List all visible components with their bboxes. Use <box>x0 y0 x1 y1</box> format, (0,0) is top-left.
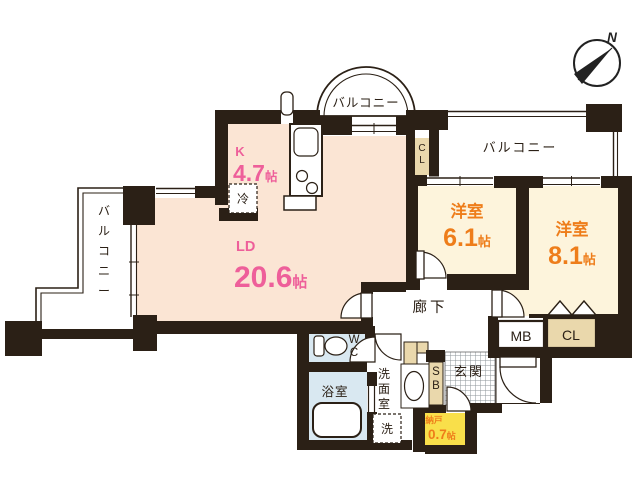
bedroom2-name: 洋室 <box>556 219 589 239</box>
fridge-label: 冷 <box>237 192 249 206</box>
storage-name: 納戸 <box>425 415 443 425</box>
balcony-left-outline <box>36 188 128 330</box>
kitchen-abbr: K <box>235 144 245 159</box>
bedroom1-name: 洋室 <box>451 201 484 221</box>
meter-box-label: MB <box>511 328 532 344</box>
washroom-door-arc <box>375 334 401 360</box>
balcony-top-label: バルコニー <box>332 96 399 110</box>
front-door-leaf <box>500 357 536 367</box>
ld-abbr: LD <box>236 239 255 255</box>
kitchen-door-leaf <box>281 92 293 115</box>
bedroom1-door-leaf <box>416 251 424 279</box>
floor-plan: バルコニー バルコニー バルコニー K 4.7帖 冷 LD 20.6帖 洋室 6… <box>0 0 640 480</box>
washroom-label: 洗面室 <box>378 367 390 411</box>
entrance-label: 玄関 <box>454 364 484 379</box>
washer-label: 洗 <box>381 422 393 436</box>
wash-basin <box>405 372 424 401</box>
bathtub <box>313 403 361 437</box>
stove-burner-1 <box>297 171 308 182</box>
hallway-label: 廊下 <box>413 299 448 316</box>
balcony-left-inner-rail <box>41 193 128 330</box>
toilet-bowl <box>325 337 347 355</box>
bathroom-label: 浴室 <box>321 384 348 399</box>
closet-hall-label: CL <box>418 143 425 166</box>
balcony-left-label: バルコニー <box>98 204 110 298</box>
closet-bedroom2-label: CL <box>562 327 580 343</box>
compass-icon: N <box>574 30 620 86</box>
stove-burner-2 <box>307 183 318 194</box>
bedroom2-door-leaf <box>492 290 502 317</box>
compass-north-label: N <box>607 30 617 45</box>
floor-plan-page: バルコニー バルコニー バルコニー K 4.7帖 冷 LD 20.6帖 洋室 6… <box>0 0 640 480</box>
kitchen-cabinet <box>284 196 316 210</box>
balcony-right-label: バルコニー <box>483 140 558 155</box>
toilet-label: WC <box>349 334 360 359</box>
toilet-tank <box>314 336 324 356</box>
ld-door-leaf <box>361 293 372 318</box>
kitchen-sink <box>294 128 318 156</box>
